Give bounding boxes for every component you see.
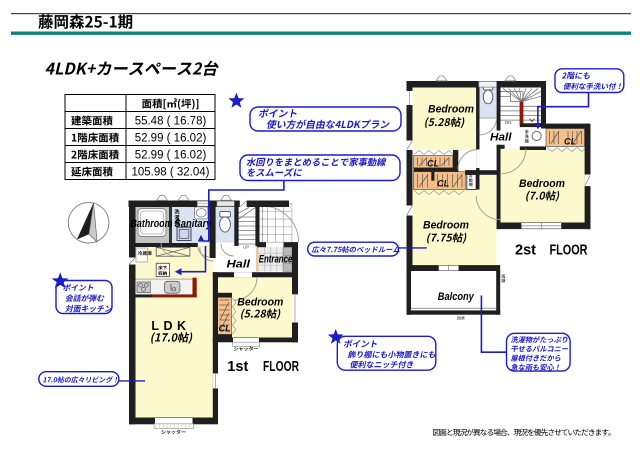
svg-text:Hall: Hall xyxy=(227,259,252,271)
svg-text:Bedroom: Bedroom xyxy=(237,297,283,309)
svg-text:Bedroom: Bedroom xyxy=(428,104,474,116)
svg-text:52.99 ( 16.02): 52.99 ( 16.02) xyxy=(135,150,207,162)
svg-text:1st: 1st xyxy=(227,359,248,375)
svg-text:FLOOR: FLOOR xyxy=(550,243,588,259)
svg-text:105.98 ( 32.04): 105.98 ( 32.04) xyxy=(131,167,209,179)
svg-text:Bedroom: Bedroom xyxy=(519,178,565,190)
svg-text:LDK: LDK xyxy=(151,319,190,333)
svg-text:DN: DN xyxy=(505,120,512,125)
svg-text:CL: CL xyxy=(427,159,440,169)
svg-text:Hall: Hall xyxy=(490,132,512,144)
svg-text:FLOOR: FLOOR xyxy=(263,359,299,375)
svg-text:Sanitary: Sanitary xyxy=(175,218,213,230)
svg-text:55.48 ( 16.78): 55.48 ( 16.78) xyxy=(135,116,207,128)
svg-text:Bedroom: Bedroom xyxy=(423,220,469,232)
svg-text:UP: UP xyxy=(243,245,249,250)
svg-text:Entrance: Entrance xyxy=(259,254,293,266)
svg-text:CL: CL xyxy=(437,179,450,189)
svg-text:52.99 ( 16.02): 52.99 ( 16.02) xyxy=(135,133,207,145)
svg-text:CL: CL xyxy=(219,324,232,334)
svg-text:Bathroom: Bathroom xyxy=(131,218,173,230)
svg-text:Balcony: Balcony xyxy=(438,291,475,303)
svg-text:CL: CL xyxy=(564,137,577,147)
svg-text:2st: 2st xyxy=(515,243,536,259)
